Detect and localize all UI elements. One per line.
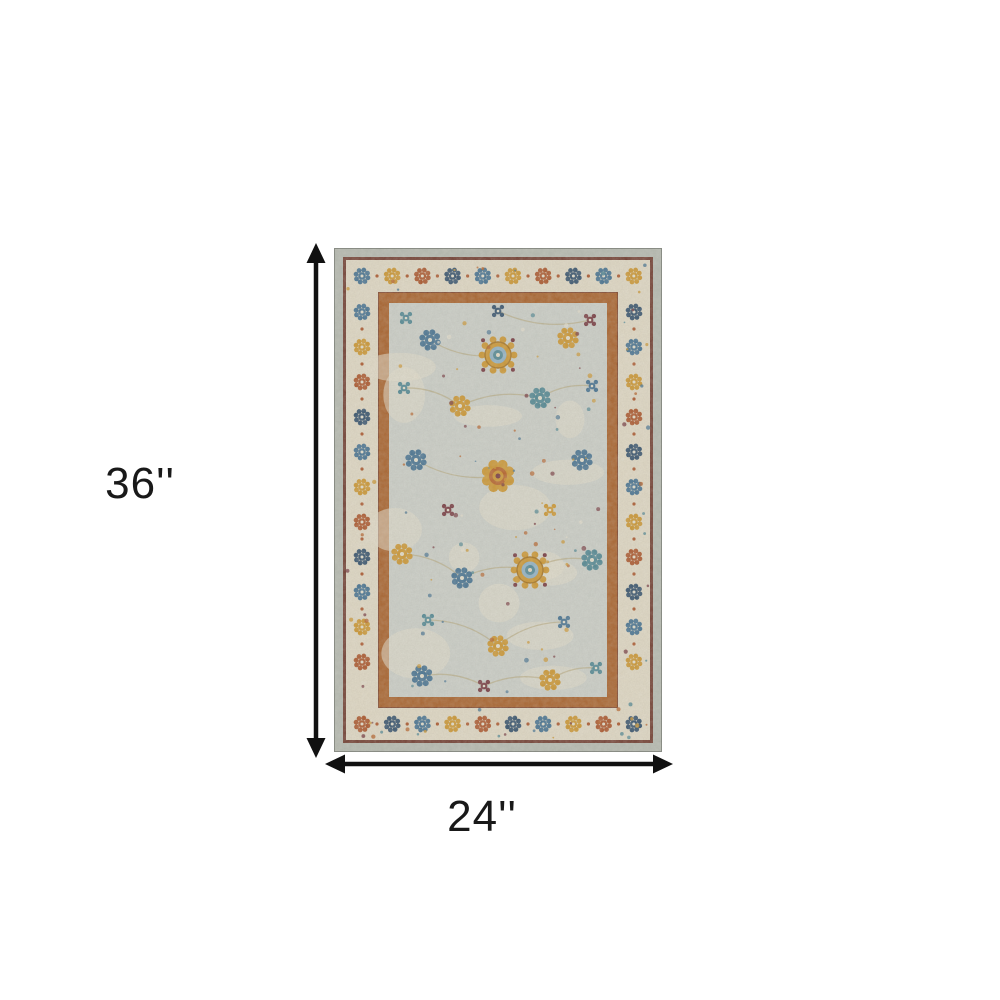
- width-dimension-label: 24'': [427, 795, 537, 839]
- height-dimension-label: 36'': [85, 462, 195, 506]
- width-arrow: [325, 755, 673, 774]
- height-arrow: [307, 243, 326, 758]
- rug-image: [334, 248, 662, 752]
- rug-illustration: [334, 248, 662, 752]
- product-dimension-diagram: 36'' 24'': [0, 0, 1000, 1000]
